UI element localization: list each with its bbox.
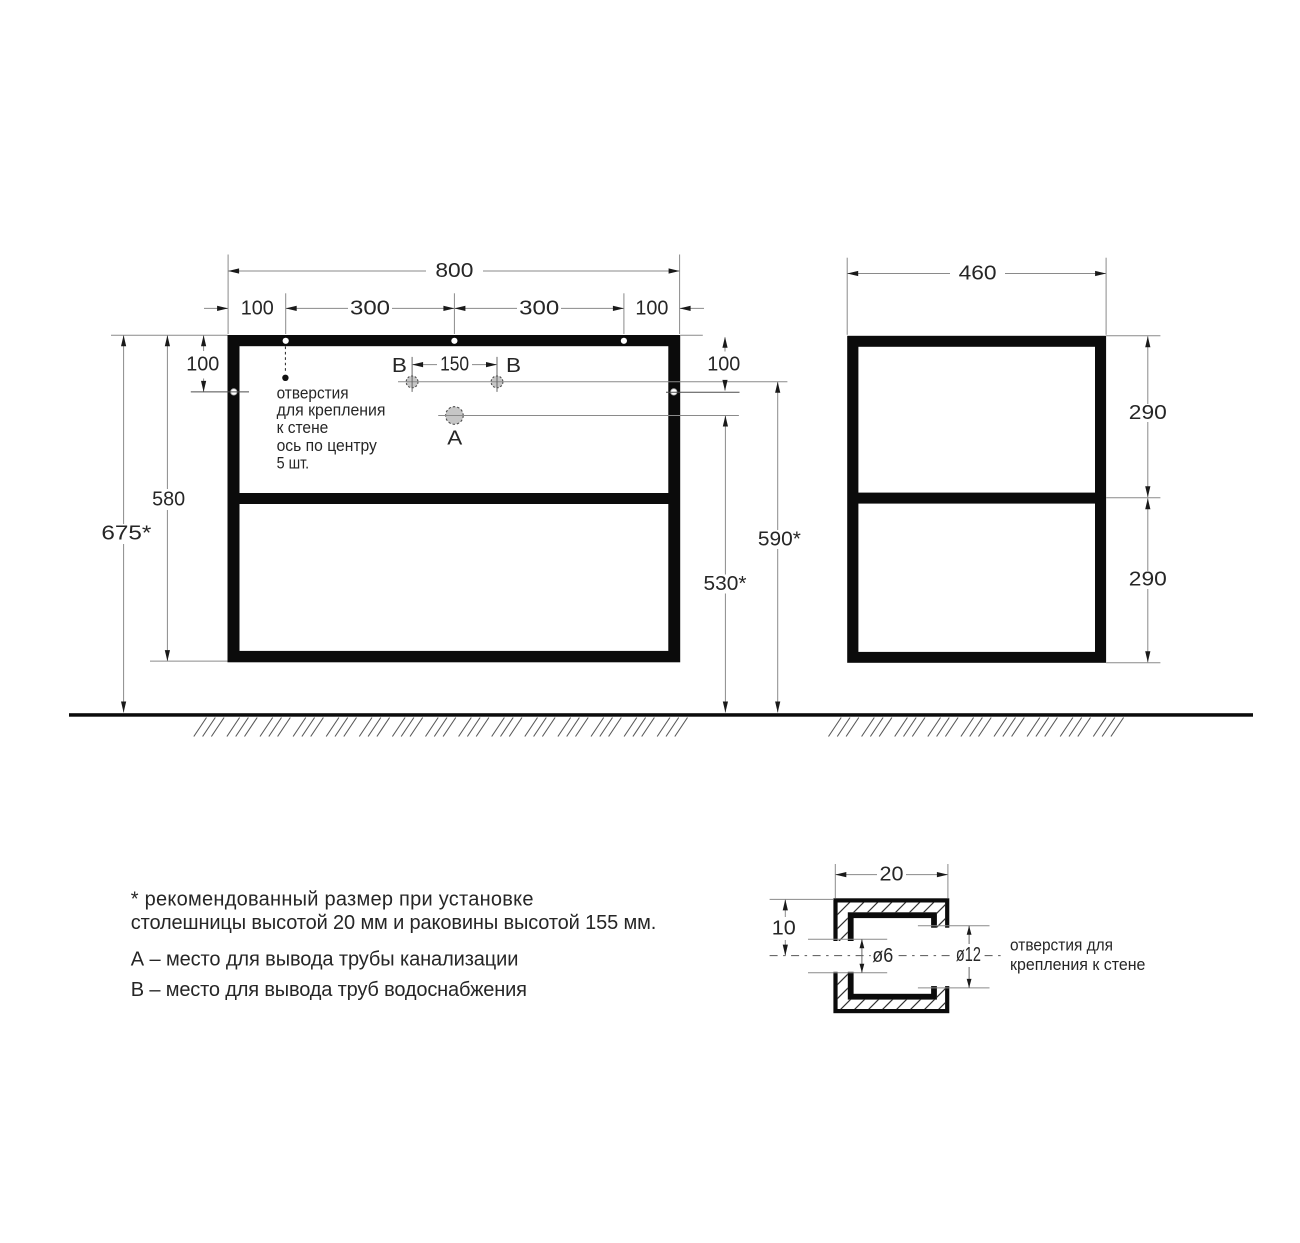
svg-text:ø12: ø12	[956, 944, 981, 966]
svg-text:к стене: к стене	[277, 418, 329, 437]
svg-text:B: B	[392, 355, 407, 377]
svg-text:675*: 675*	[101, 523, 151, 545]
svg-text:100: 100	[186, 354, 219, 376]
svg-text:290: 290	[1129, 569, 1167, 591]
svg-text:A: A	[447, 427, 463, 449]
svg-text:столешницы высотой 20 мм и рак: столешницы высотой 20 мм и раковины высо…	[131, 912, 657, 934]
svg-text:100: 100	[635, 297, 668, 319]
svg-text:В – место для вывода труб водо: В – место для вывода труб водоснабжения	[131, 979, 527, 1001]
svg-text:800: 800	[435, 260, 473, 282]
svg-text:ось по центру: ось по центру	[277, 436, 378, 455]
svg-text:крепления к стене: крепления к стене	[1010, 955, 1145, 974]
svg-text:590*: 590*	[758, 529, 801, 551]
svg-text:290: 290	[1129, 402, 1167, 424]
svg-text:580: 580	[152, 488, 185, 510]
svg-text:А – место для вывода трубы кан: А – место для вывода трубы канализации	[131, 949, 519, 971]
svg-text:300: 300	[350, 297, 390, 319]
svg-text:460: 460	[959, 263, 997, 285]
svg-text:отверстия для: отверстия для	[1010, 936, 1113, 955]
svg-text:* рекомендованный размер при у: * рекомендованный размер при установке	[131, 888, 534, 910]
svg-text:ø6: ø6	[872, 945, 893, 967]
svg-text:20: 20	[880, 864, 904, 886]
svg-text:10: 10	[772, 918, 796, 940]
svg-text:B: B	[506, 355, 521, 377]
svg-text:для крепления: для крепления	[277, 401, 386, 420]
svg-text:отверстия: отверстия	[277, 383, 349, 402]
svg-text:530*: 530*	[704, 573, 747, 595]
svg-text:150: 150	[440, 354, 469, 376]
svg-text:5 шт.: 5 шт.	[277, 454, 310, 473]
svg-text:100: 100	[707, 354, 740, 376]
svg-text:100: 100	[241, 297, 274, 319]
svg-text:300: 300	[519, 297, 559, 319]
